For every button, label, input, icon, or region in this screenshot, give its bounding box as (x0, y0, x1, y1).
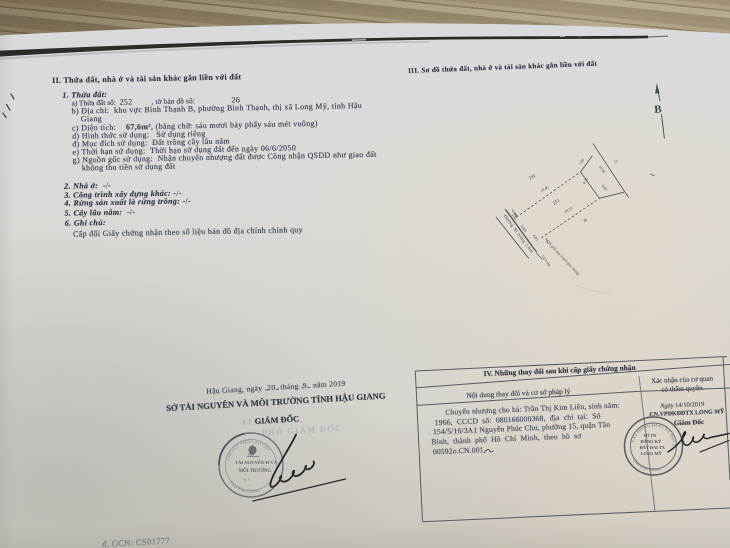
svg-text:7.08: 7.08 (578, 158, 585, 166)
svg-text:CHUYÊN VIÊN CAO CẤP: CHUYÊN VIÊN CAO CẤP (225, 439, 271, 461)
svg-text:291: 291 (528, 173, 537, 181)
svg-text:ĐĂNG KÝ: ĐĂNG KÝ (641, 439, 662, 444)
svg-text:Chỉ giới quy hoạch giao thông: Chỉ giới quy hoạch giao thông (546, 239, 580, 276)
svg-text:19.45: 19.45 (539, 184, 549, 193)
svg-text:TÀI NGUYÊN-H VÀ: TÀI NGUYÊN-H VÀ (235, 460, 278, 465)
svg-text:4.36: 4.36 (582, 177, 589, 185)
svg-text:B: B (654, 103, 663, 116)
svg-text:Lộ 1.0m: Lộ 1.0m (541, 255, 552, 268)
svg-text:10.96: 10.96 (598, 165, 606, 174)
svg-text:SỞ TN: SỞ TN (644, 433, 658, 438)
svg-text:251: 251 (552, 198, 561, 206)
svg-text:ĐẤT ĐAI TX: ĐẤT ĐAI TX (640, 445, 666, 450)
svg-text:4.05: 4.05 (532, 233, 540, 242)
svg-text:★ S: ★ S (243, 477, 250, 482)
svg-text:8.82: 8.82 (601, 184, 608, 192)
svg-text:MÔI TRƯỜNG: MÔI TRƯỜNG (239, 468, 272, 474)
svg-text:Đường Xi măng 2.0m: Đường Xi măng 2.0m (503, 213, 535, 254)
svg-text:29.25: 29.25 (563, 205, 573, 214)
svg-text:LONG MỸ: LONG MỸ (641, 451, 663, 456)
svg-text:26: 26 (582, 217, 588, 223)
svg-text:51: 51 (613, 159, 618, 164)
